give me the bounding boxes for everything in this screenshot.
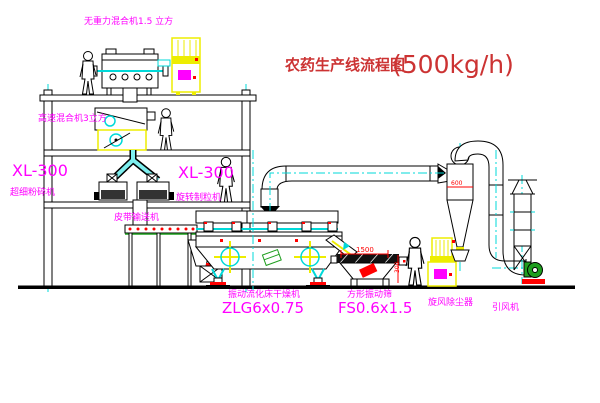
cabinet-screen — [434, 269, 447, 279]
label-high-speed-mixer: 高速混合机3立方 — [38, 112, 107, 124]
control-cabinet-top — [172, 38, 200, 95]
person-second-floor — [158, 109, 174, 150]
control-cabinet-bottom — [428, 238, 456, 286]
gravity-mixer — [92, 49, 170, 102]
cabinet-screen — [178, 70, 191, 80]
label-granulator-model: XL-300 — [178, 163, 234, 182]
label-dryer-model: ZLG6x0.75 — [222, 299, 304, 317]
dim-sieve-length: 1500 — [356, 246, 374, 254]
label-mill-model: XL-300 — [12, 161, 68, 180]
induced-draft-fan — [522, 262, 545, 284]
label-granulator-name: 旋转制粒机 — [176, 191, 221, 203]
dim-sieve-height: 300 — [394, 261, 401, 273]
process-flow-diagram: 农药生产线流程图 (500kg/h) 无重力混合机1.5 立方 高速混合机3立方… — [0, 0, 600, 403]
dim-cyclone: 600 — [451, 180, 463, 187]
label-gravity-mixer: 无重力混合机1.5 立方 — [84, 15, 173, 27]
belt-conveyor — [125, 225, 197, 286]
stack-body — [514, 194, 531, 246]
fan-base — [522, 279, 545, 284]
top-floor-slab — [40, 95, 256, 101]
dryer-deck — [196, 232, 342, 247]
label-sieve-model: FS0.6x1.5 — [338, 299, 412, 317]
label-mill-name: 超细粉碎机 — [10, 186, 55, 198]
label-belt-conveyor: 皮带输送机 — [114, 211, 159, 223]
label-fan: 引风机 — [492, 301, 519, 313]
ground-line — [18, 286, 575, 290]
diagram-capacity: (500kg/h) — [392, 50, 514, 79]
label-cyclone: 旋风除尘器 — [428, 296, 473, 308]
dryer-hood — [196, 211, 338, 223]
mixer-discharge — [123, 88, 137, 102]
person-ground — [406, 237, 424, 285]
sieve-deck — [337, 254, 399, 263]
diagram-title: 农药生产线流程图 — [284, 56, 405, 74]
second-floor-slab — [44, 150, 250, 156]
exhaust-duct — [260, 164, 460, 217]
person-top-floor — [80, 52, 96, 95]
